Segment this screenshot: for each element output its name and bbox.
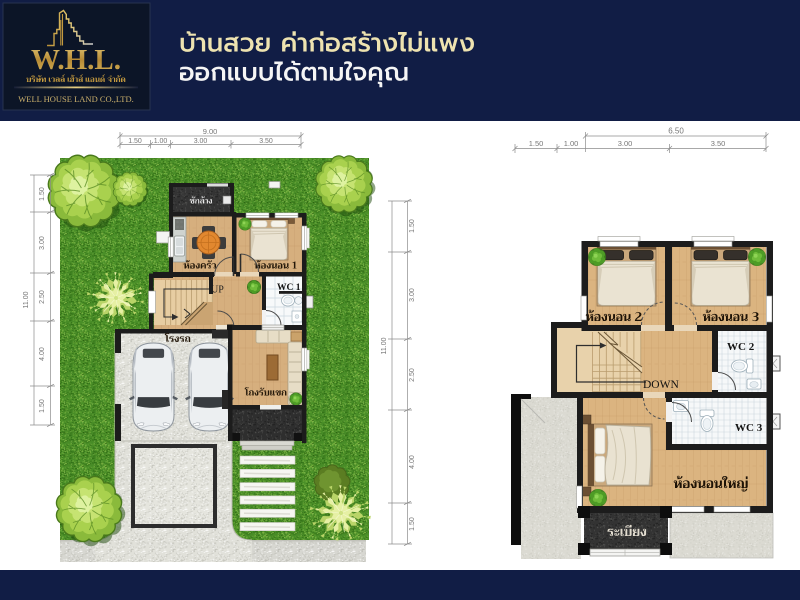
svg-text:WC 2: WC 2: [727, 341, 755, 353]
svg-text:3.50: 3.50: [259, 138, 273, 145]
svg-text:6.50: 6.50: [668, 127, 684, 136]
svg-text:1.50: 1.50: [39, 187, 46, 201]
svg-text:1.50: 1.50: [529, 139, 544, 148]
svg-text:1.50: 1.50: [128, 138, 142, 145]
svg-text:1.50: 1.50: [409, 517, 416, 531]
svg-text:11.00: 11.00: [23, 291, 30, 308]
svg-text:9.00: 9.00: [203, 127, 218, 136]
svg-text:3.00: 3.00: [39, 236, 46, 250]
svg-text:2.50: 2.50: [39, 290, 46, 304]
svg-text:3.50: 3.50: [711, 139, 726, 148]
svg-text:WC 3: WC 3: [735, 422, 763, 434]
svg-text:11.00: 11.00: [381, 337, 388, 354]
svg-text:1.50: 1.50: [39, 399, 46, 413]
svg-text:3.00: 3.00: [618, 139, 633, 148]
svg-text:WC 1: WC 1: [277, 283, 301, 293]
svg-text:1.00: 1.00: [154, 138, 168, 145]
svg-text:2.50: 2.50: [409, 368, 416, 382]
svg-text:WELL HOUSE LAND CO.,LTD.: WELL HOUSE LAND CO.,LTD.: [18, 94, 134, 104]
svg-text:W.H.L.: W.H.L.: [31, 44, 121, 76]
svg-text:DOWN: DOWN: [643, 379, 679, 391]
svg-text:3.00: 3.00: [409, 288, 416, 302]
svg-text:4.00: 4.00: [409, 455, 416, 469]
svg-text:1.00: 1.00: [564, 139, 579, 148]
svg-text:3.00: 3.00: [194, 138, 208, 145]
svg-text:1.50: 1.50: [409, 219, 416, 233]
svg-text:4.00: 4.00: [39, 347, 46, 361]
